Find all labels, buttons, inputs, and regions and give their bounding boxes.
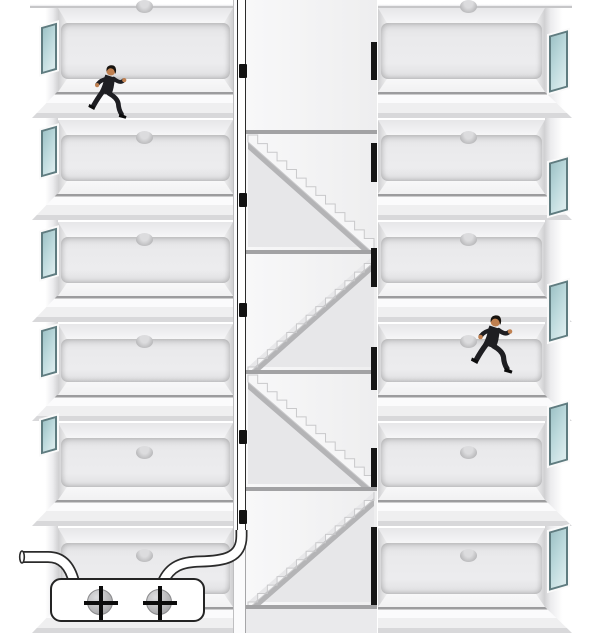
ceiling-lamp-icon — [136, 0, 153, 13]
room-right-4 — [378, 324, 545, 395]
door-handle-1 — [239, 64, 247, 78]
floor-slab-right-5 — [378, 500, 572, 526]
room-ceiling — [378, 528, 545, 543]
room-floor-surface — [378, 79, 545, 92]
room-right-3 — [378, 222, 545, 296]
machine-button-right[interactable] — [146, 589, 172, 615]
ceiling-lamp-icon — [460, 131, 477, 144]
window-left-3 — [41, 228, 57, 280]
floor-slab-right-1 — [378, 92, 572, 118]
window-left-4 — [41, 326, 57, 378]
window-left-2 — [41, 126, 57, 178]
room-floor-surface — [378, 181, 545, 194]
floor-slab-left-4 — [30, 395, 233, 421]
ceiling-lamp-icon — [460, 0, 477, 13]
left-wing-roof-slab — [30, 0, 233, 8]
open-doorway-1 — [371, 42, 377, 80]
window-left-5 — [41, 416, 57, 455]
ceiling-lamp-icon — [460, 549, 477, 562]
stair-flight-2 — [246, 250, 377, 370]
ceiling-lamp-icon — [136, 446, 153, 459]
plus-icon — [158, 586, 163, 620]
building-cross-section — [0, 0, 607, 633]
open-doorway-4 — [371, 347, 377, 390]
room-floor-surface — [58, 382, 233, 395]
room-left-1 — [58, 8, 233, 92]
open-doorway-3 — [371, 248, 377, 287]
door-handle-2 — [239, 193, 247, 207]
runner-right-middle — [470, 314, 519, 376]
room-back-wall — [381, 438, 542, 487]
ceiling-lamp-icon — [136, 335, 153, 348]
tube-open-end — [20, 551, 25, 563]
room-right-2 — [378, 120, 545, 194]
running-man-icon — [471, 315, 513, 373]
room-right-6 — [378, 528, 545, 607]
room-left-5 — [58, 423, 233, 500]
runner-left-top — [86, 64, 134, 121]
window-right-4 — [549, 402, 568, 465]
machine-panel — [50, 578, 205, 622]
running-man-icon — [88, 65, 126, 119]
room-floor-surface — [378, 283, 545, 296]
room-ceiling — [58, 423, 233, 438]
floor-slab-left-3 — [30, 296, 233, 322]
plus-icon — [99, 586, 104, 620]
floor-slab-right-4 — [378, 395, 572, 421]
ceiling-lamp-icon — [460, 446, 477, 459]
room-floor-surface — [58, 487, 233, 500]
stairwell-pipe-vertical — [237, 0, 247, 536]
room-floor-surface — [58, 181, 233, 194]
stair-landing-line-2 — [246, 250, 377, 254]
window-right-5 — [549, 526, 568, 590]
window-right-3 — [549, 280, 568, 341]
floor-slab-left-5 — [30, 500, 233, 526]
stair-landing-line-4 — [246, 487, 377, 491]
ceiling-lamp-icon — [136, 131, 153, 144]
room-right-1 — [378, 8, 545, 92]
room-floor-surface — [378, 487, 545, 500]
window-right-1 — [549, 30, 568, 92]
room-right-5 — [378, 423, 545, 500]
stair-flight-1 — [246, 130, 377, 250]
open-doorway-2 — [371, 143, 377, 182]
ceiling-lamp-icon — [460, 233, 477, 246]
stair-flight-3 — [246, 370, 377, 487]
floor-slab-left-2 — [30, 194, 233, 220]
machine-button-left[interactable] — [87, 589, 113, 615]
door-handle-4 — [239, 430, 247, 444]
window-right-2 — [549, 157, 568, 215]
open-doorway-6 — [371, 527, 377, 605]
stair-landing-line-3 — [246, 370, 377, 374]
ceiling-lamp-icon — [136, 233, 153, 246]
room-back-wall — [381, 23, 542, 79]
floor-slab-right-6 — [378, 607, 572, 633]
room-ceiling — [378, 423, 545, 438]
room-floor-surface — [378, 594, 545, 607]
stair-landing-line-1 — [246, 130, 377, 134]
room-floor-surface — [378, 382, 545, 395]
door-handle-3 — [239, 303, 247, 317]
floor-slab-right-2 — [378, 194, 572, 220]
window-left-1 — [41, 23, 57, 75]
door-handle-5 — [239, 510, 247, 524]
open-doorway-5 — [371, 448, 377, 487]
room-floor-surface — [58, 283, 233, 296]
room-floor-surface — [58, 79, 233, 92]
